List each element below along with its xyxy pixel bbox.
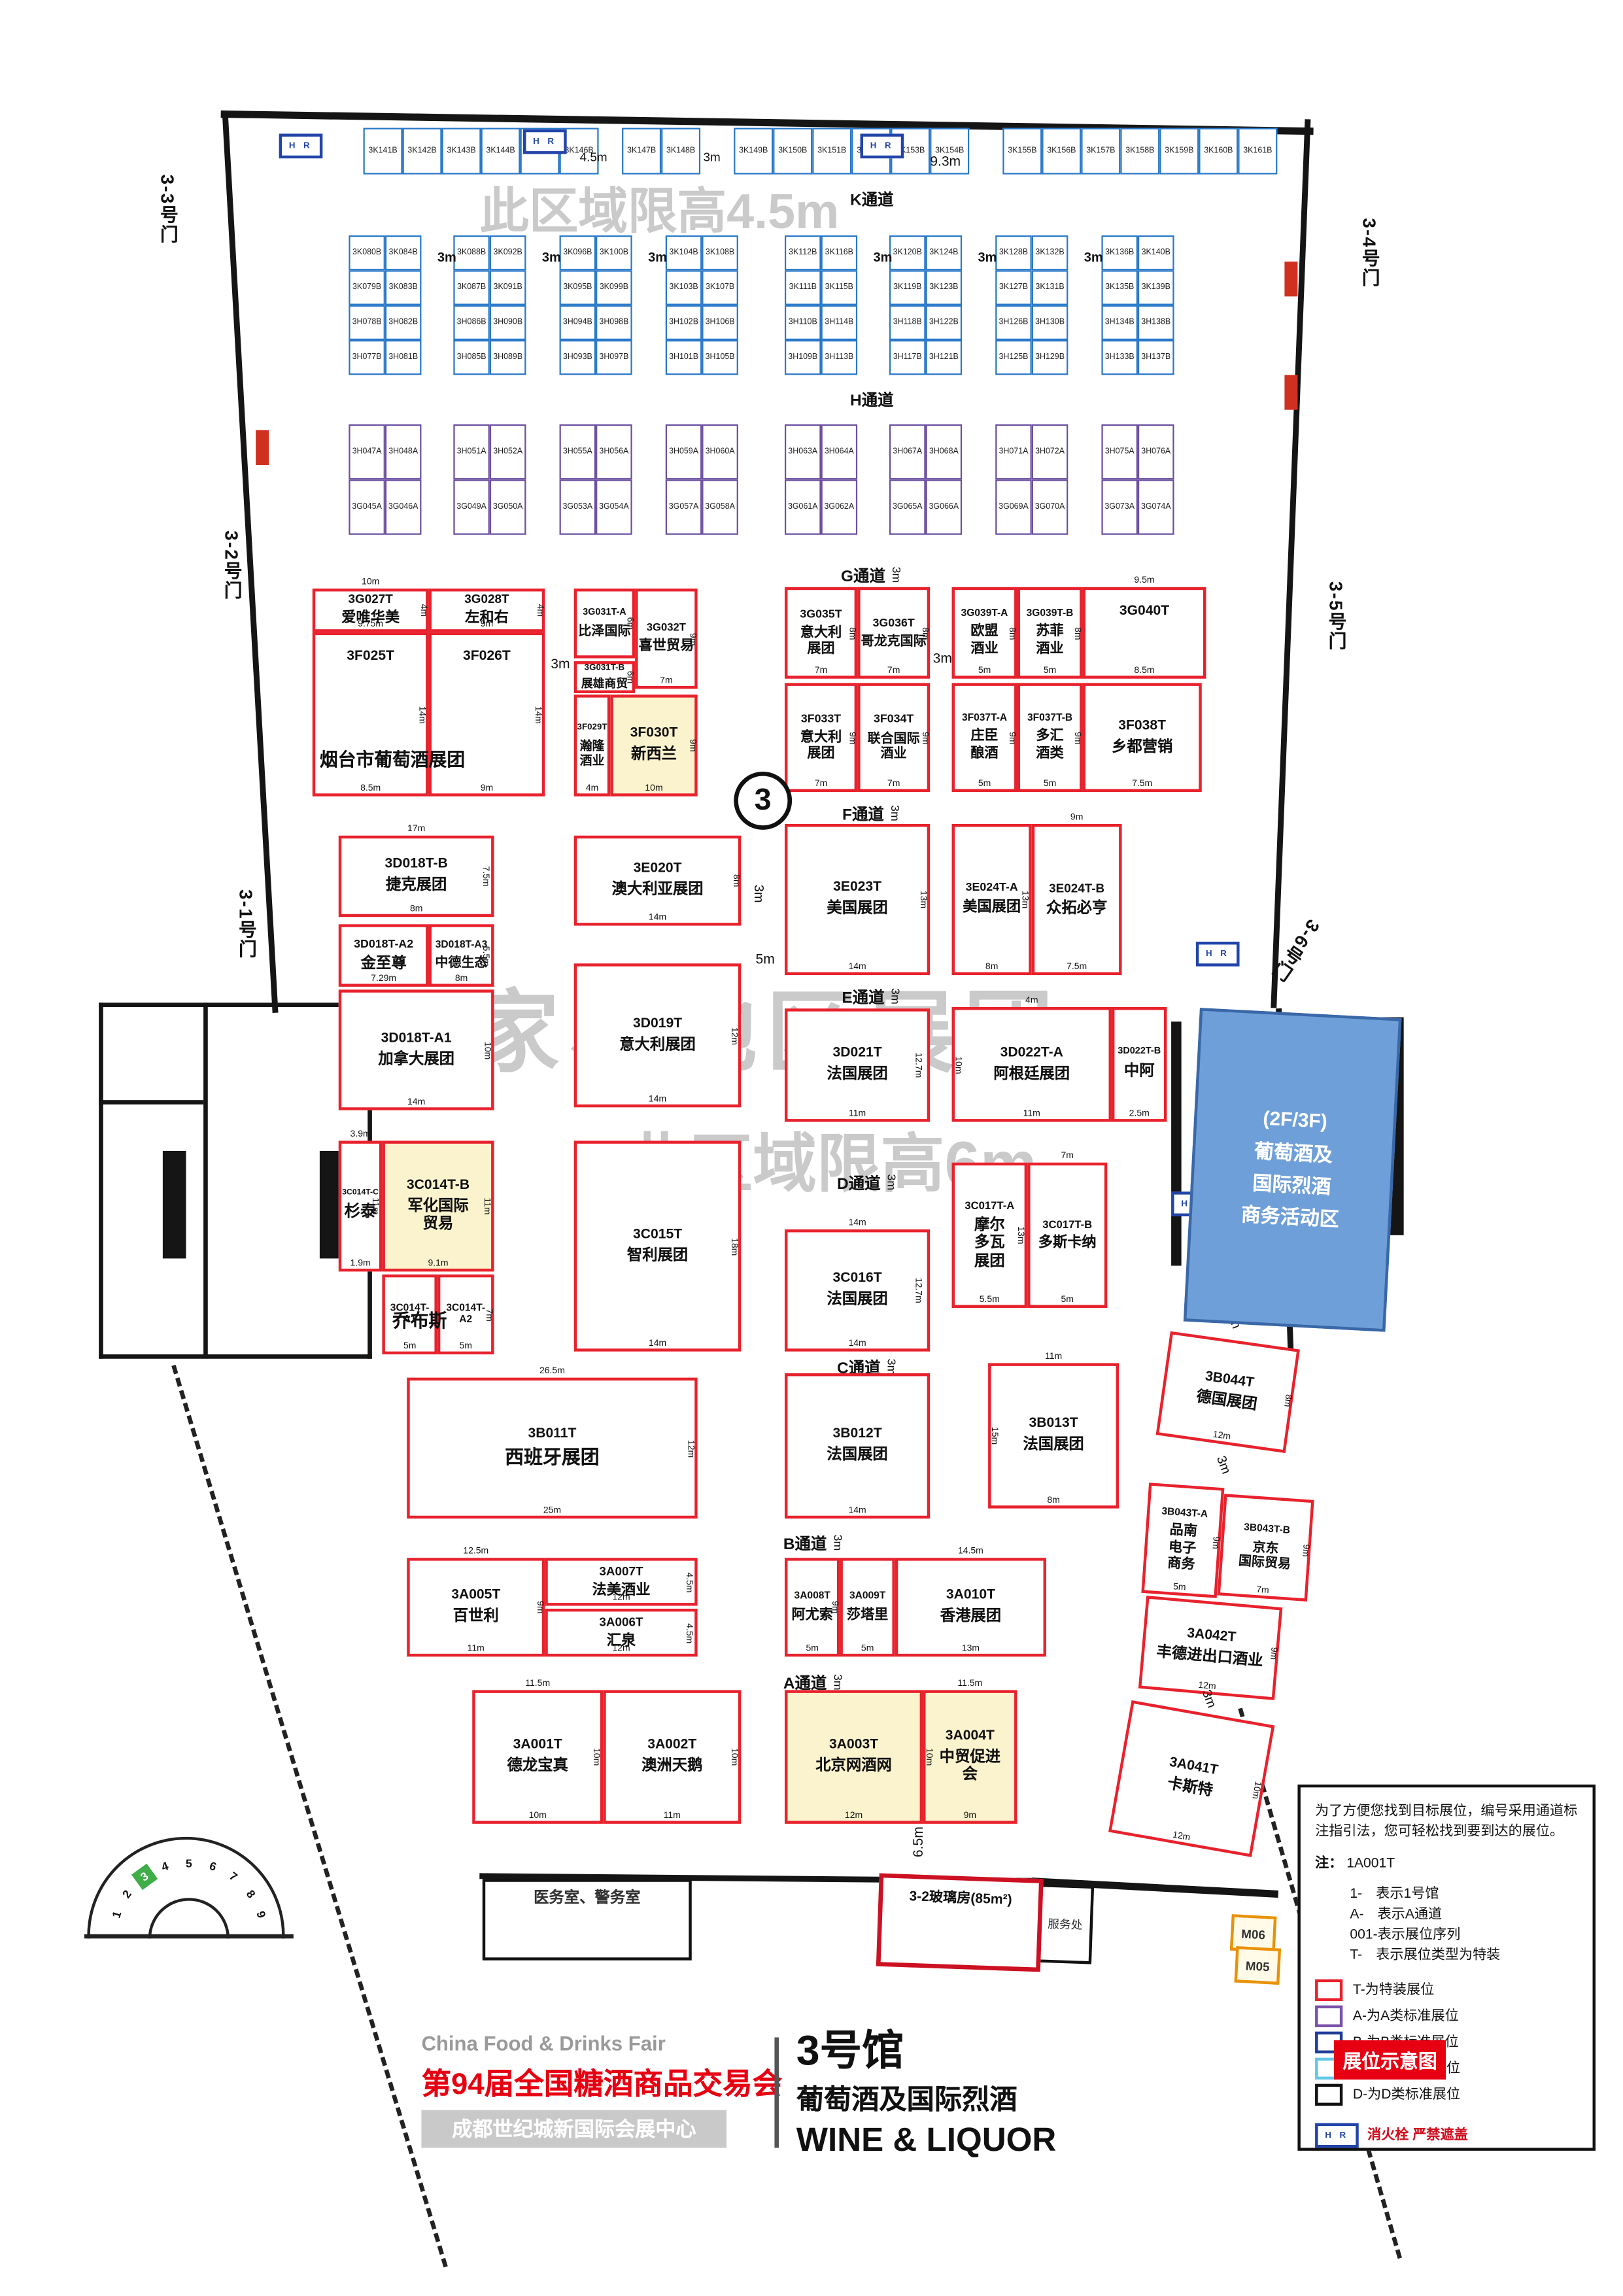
cell-3H077B[interactable]: 3H077B — [349, 340, 385, 375]
cell-3H110B[interactable]: 3H110B — [785, 305, 821, 340]
booth-3A007T[interactable]: 3A007T法美酒业12m4.5m — [545, 1558, 697, 1605]
cell-3H060A[interactable]: 3H060A — [702, 424, 738, 479]
booth-id: 3A002T — [647, 1738, 696, 1753]
booth-name: 阿根廷展团 — [993, 1065, 1070, 1082]
legend-note-line: 001-表示展位序列 — [1350, 1925, 1578, 1945]
dim-right: 11m — [370, 1197, 381, 1214]
legend-type-swatch — [1315, 2006, 1342, 2027]
cell-3K148B[interactable]: 3K148B — [661, 128, 700, 175]
cell-3K157B[interactable]: 3K157B — [1081, 128, 1120, 175]
booth-id: 3G035T — [800, 608, 842, 621]
booth-id: 3A008T — [794, 1592, 830, 1602]
booth-3D018T-A1[interactable]: 3D018T-A1加拿大展团14m10m — [339, 989, 494, 1110]
aisle-label-B通道: B通道3m — [783, 1532, 844, 1555]
booth-id: 3B012T — [833, 1428, 882, 1442]
cell-3K083B[interactable]: 3K083B — [385, 270, 422, 305]
door-label-3-1号门[interactable]: 3-1号门 — [233, 889, 260, 959]
dim-bottom: 5m — [440, 1341, 491, 1352]
booth-id: 3A009T — [849, 1592, 885, 1602]
cell-3K084B[interactable]: 3K084B — [385, 235, 422, 270]
booth-3D021T[interactable]: 3D021T法国展团11m12.7m — [785, 1008, 930, 1122]
dim-right: 12m — [728, 1027, 739, 1044]
aisle-label-G通道: G通道3m — [841, 564, 903, 587]
booth-3A042T[interactable]: 3A042T丰德进出口酒业12m9m — [1138, 1596, 1282, 1700]
cell-3H063A[interactable]: 3H063A — [785, 424, 821, 479]
grid-gap-width: 3m — [542, 250, 561, 264]
cell-3K135B[interactable]: 3K135B — [1101, 270, 1138, 305]
booth-name: 美国展团 — [827, 900, 887, 917]
booth-3C014T-B[interactable]: 3C014T-B军化国际 贸易9.1m11m — [382, 1140, 494, 1271]
cell-3K155B[interactable]: 3K155B — [1002, 128, 1042, 175]
dim-right: 8m — [1282, 1394, 1293, 1407]
cell-3H105B[interactable]: 3H105B — [702, 340, 738, 375]
cell-3G046A[interactable]: 3G046A — [385, 479, 422, 534]
cell-3H067A[interactable]: 3H067A — [889, 424, 926, 479]
cell-3K099B[interactable]: 3K099B — [596, 270, 632, 305]
booth-name: 法国展团 — [1023, 1436, 1084, 1454]
cell-3H118B[interactable]: 3H118B — [889, 305, 926, 340]
cell-3H113B[interactable]: 3H113B — [821, 340, 858, 375]
booth-3F026T[interactable]: 3F026T9m14m — [429, 632, 545, 797]
dim-bottom: 7m — [787, 666, 854, 676]
cell-3H059A[interactable]: 3H059A — [666, 424, 702, 479]
cell-3H126B[interactable]: 3H126B — [995, 305, 1032, 340]
hydrant-icon: H R — [861, 133, 904, 158]
cell-3H093B[interactable]: 3H093B — [560, 340, 596, 375]
booth-3F029T[interactable]: 3F029T瀚隆 酒业4m — [574, 694, 611, 797]
booth-3A004T[interactable]: 3A004T中贸促进 会11.5m9m10m — [923, 1690, 1017, 1823]
booth-name: 意大利 展团 — [800, 625, 842, 658]
booth-3B043T-A[interactable]: 3B043T-A品南 电子 商务5m9m — [1141, 1482, 1224, 1598]
cell-3K080B[interactable]: 3K080B — [349, 235, 385, 270]
map-label: 5m — [756, 952, 775, 968]
booth-3G031T-A[interactable]: 3G031T-A比泽国际6m — [574, 589, 635, 659]
booth-name: 西班牙展团 — [505, 1447, 599, 1469]
booth-id: 3G036T — [873, 617, 915, 629]
cell-3G069A[interactable]: 3G069A — [995, 479, 1032, 534]
booth-3B011T[interactable]: 3B011T西班牙展团26.5m25m12m — [407, 1378, 697, 1519]
booth-3C015T[interactable]: 3C015T智利展团14m18m — [574, 1140, 742, 1351]
cell-3K127B[interactable]: 3K127B — [995, 270, 1032, 305]
cell-3K095B[interactable]: 3K095B — [560, 270, 596, 305]
dim-bottom: 11m — [787, 1109, 927, 1120]
dim-bottom: 7m — [638, 676, 695, 686]
cell-3K107B[interactable]: 3K107B — [702, 270, 738, 305]
map-label: 3m — [751, 885, 766, 903]
cell-3K123B[interactable]: 3K123B — [926, 270, 963, 305]
booth-3F037T-B[interactable]: 3F037T-B多汇 酒类5m9m — [1017, 683, 1083, 792]
cell-3K131B[interactable]: 3K131B — [1032, 270, 1068, 305]
booth-3F030T[interactable]: 3F030T新西兰10m9m — [610, 694, 697, 797]
dim-bottom: 5m — [385, 1341, 435, 1352]
booth-name: 金至尊 — [361, 955, 407, 972]
booth-M05[interactable]: M05 — [1234, 1946, 1281, 1985]
cell-3H114B[interactable]: 3H114B — [821, 305, 858, 340]
dim-bottom: 5m — [1020, 779, 1080, 789]
booth-id: 3A006T — [599, 1615, 643, 1628]
cell-3H137B[interactable]: 3H137B — [1138, 340, 1174, 375]
booth-3D018T-B[interactable]: 3D018T-B捷克展团17m8m7.5m — [339, 836, 494, 917]
dim-right: 8m — [920, 626, 931, 639]
cell-3G053A[interactable]: 3G053A — [560, 479, 596, 534]
booth-id: 3D018T-A1 — [381, 1031, 452, 1046]
cell-3K096B[interactable]: 3K096B — [560, 235, 596, 270]
booth-id: 3F029T — [577, 724, 607, 733]
booth-3G028T[interactable]: 3G028T左和右9m4m — [429, 589, 545, 632]
cell-3K140B[interactable]: 3K140B — [1138, 235, 1174, 270]
cell-3H072A[interactable]: 3H072A — [1032, 424, 1068, 479]
cell-3H109B[interactable]: 3H109B — [785, 340, 821, 375]
hydrant-icon: H R — [523, 129, 567, 154]
cell-3H051A[interactable]: 3H051A — [453, 424, 490, 479]
cell-3K151B[interactable]: 3K151B — [812, 128, 851, 175]
cell-3K100B[interactable]: 3K100B — [596, 235, 632, 270]
booth-name: 北京网酒网 — [815, 1757, 892, 1775]
cell-3K132B[interactable]: 3K132B — [1032, 235, 1068, 270]
wall-segment — [99, 1354, 372, 1359]
dim-bottom: 8m — [432, 974, 491, 984]
dim-right: 9m — [1210, 1536, 1222, 1549]
booth-3G031T-B[interactable]: 3G031T-B展雄商贸6m — [574, 661, 635, 693]
cell-3K119B[interactable]: 3K119B — [889, 270, 926, 305]
legend-note-line: T- 表示展位类型为特装 — [1350, 1945, 1578, 1966]
cell-3G045A[interactable]: 3G045A — [349, 479, 385, 534]
cell-3K087B[interactable]: 3K087B — [453, 270, 490, 305]
cell-3H117B[interactable]: 3H117B — [889, 340, 926, 375]
dim-right: 9m — [687, 739, 698, 751]
booth-3C014T-C[interactable]: 3C014T-C杉泰3.9m1.9m11m — [339, 1140, 383, 1271]
cell-3H097B[interactable]: 3H097B — [596, 340, 632, 375]
wall-segment — [1271, 119, 1310, 1008]
cell-3G061A[interactable]: 3G061A — [785, 479, 821, 534]
booth-3A009T[interactable]: 3A009T莎塔里5m — [840, 1558, 895, 1656]
door-label-3-5号门[interactable]: 3-5号门 — [1322, 581, 1350, 651]
dim-top: 17m — [341, 824, 491, 834]
booth-3A001T[interactable]: 3A001T德龙宝真11.5m10m10m — [472, 1690, 603, 1823]
booth-3B043T-B[interactable]: 3B043T-B京东 国际贸易7m9m — [1217, 1494, 1314, 1602]
booth-3F037T-A[interactable]: 3F037T-A庄臣 酿酒5m9m — [952, 683, 1017, 792]
door-label-3-2号门[interactable]: 3-2号门 — [218, 530, 245, 600]
cell-3K112B[interactable]: 3K112B — [785, 235, 821, 270]
dim-top: 26.5m — [410, 1366, 695, 1377]
booth-3E024T-B[interactable]: 3E024T-B众拓必亨9m7.5m — [1032, 824, 1122, 975]
dim-right: 4m — [535, 604, 545, 617]
cell-3G073A[interactable]: 3G073A — [1101, 479, 1138, 534]
dim-right: 9m — [687, 632, 698, 645]
cell-3K111B[interactable]: 3K111B — [785, 270, 821, 305]
dim-bottom: 12m — [1112, 1819, 1251, 1853]
booth-3D018T-A2[interactable]: 3D018T-A2金至尊7.29m — [339, 924, 429, 987]
cell-3G054A[interactable]: 3G054A — [596, 479, 632, 534]
cell-3K144B[interactable]: 3K144B — [481, 128, 521, 175]
aisle-width: 3m — [831, 1535, 844, 1552]
dim-left: 15m — [989, 1427, 999, 1445]
dim-right: 12.7m — [914, 1052, 924, 1078]
cell-3H055A[interactable]: 3H055A — [560, 424, 596, 479]
cell-3K159B[interactable]: 3K159B — [1159, 128, 1199, 175]
booth-3G035T[interactable]: 3G035T意大利 展团7m8m — [785, 587, 857, 679]
cell-3H125B[interactable]: 3H125B — [995, 340, 1032, 375]
cell-3H052A[interactable]: 3H052A — [490, 424, 526, 479]
cell-3K104B[interactable]: 3K104B — [666, 235, 702, 270]
booth-id: 3F033T — [801, 713, 841, 725]
booth-3D022T-B[interactable]: 3D022T-B中阿2.5m — [1112, 1007, 1167, 1122]
aisle-name: K通道 — [850, 188, 894, 211]
aisle-name: D通道 — [837, 1171, 881, 1195]
booth-3F034T[interactable]: 3F034T联合国际 酒业7m9m — [857, 683, 930, 792]
cell-3H068A[interactable]: 3H068A — [926, 424, 963, 479]
cell-3K088B[interactable]: 3K088B — [453, 235, 490, 270]
cell-3G066A[interactable]: 3G066A — [926, 479, 963, 534]
booth-3C016T[interactable]: 3C016T法国展团14m14m12.7m — [785, 1229, 930, 1352]
dim-bottom: 1.9m — [341, 1258, 379, 1269]
booth-3G032T[interactable]: 3G032T喜世贸易7m9m — [635, 589, 698, 689]
dim-bottom: 8m — [955, 962, 1029, 972]
booth-3G027T[interactable]: 3G027T爱唯华美10m9.75m4m — [313, 589, 429, 632]
booth-3D022T-A[interactable]: 3D022T-A阿根廷展团4m11m10m — [952, 1007, 1112, 1122]
booth-3A008T[interactable]: 3A008T阿尤索5m9m — [785, 1558, 840, 1656]
booth-id: 3A042T — [1186, 1628, 1237, 1647]
booth-3F025T[interactable]: 3F025T8.5m14m — [313, 632, 429, 797]
booth-3A005T[interactable]: 3A005T百世利12.5m11m9m — [407, 1558, 545, 1656]
booth-name: 多汇 酒类 — [1036, 728, 1063, 761]
hall-title-en: WINE & LIQUOR — [796, 2120, 1057, 2159]
cell-3G074A[interactable]: 3G074A — [1138, 479, 1174, 534]
cell-3K156B[interactable]: 3K156B — [1042, 128, 1081, 175]
booth-name: 德国展团 — [1195, 1388, 1258, 1414]
cell-3H090B[interactable]: 3H090B — [490, 305, 526, 340]
legend-hydrant-text: 消火栓 严禁遮盖 — [1367, 2126, 1468, 2146]
plan-badge: 展位示意图 — [1334, 2040, 1446, 2080]
cell-3K103B[interactable]: 3K103B — [666, 270, 702, 305]
cell-3H075A[interactable]: 3H075A — [1101, 424, 1138, 479]
legend-panel: 为了方便您找到目标展位，编号采用通道标注指引法，您可轻松找到要到达的展位。 注：… — [1297, 1785, 1596, 2151]
booth-3C017T-A[interactable]: 3C017T-A摩尔 多瓦 展团5.5m13m — [952, 1163, 1028, 1308]
booth-3E024T-A[interactable]: 3E024T-A美国展团8m13m — [952, 824, 1032, 975]
booth-name: 众拓必亨 — [1046, 899, 1107, 917]
dim-right: 13m — [1019, 891, 1030, 908]
booth-3E023T[interactable]: 3E023T美国展团14m13m — [785, 824, 930, 975]
cell-3H071A[interactable]: 3H071A — [995, 424, 1032, 479]
cell-3H122B[interactable]: 3H122B — [926, 305, 963, 340]
grid-gap-width: 3m — [437, 250, 456, 264]
cell-3H102B[interactable]: 3H102B — [666, 305, 702, 340]
booth-name: 中阿 — [1124, 1063, 1155, 1080]
dim-top: 10m — [315, 577, 426, 587]
dim-bottom: 7.5m — [1085, 779, 1199, 789]
booth-3G036T[interactable]: 3G036T哥龙克国际7m8m — [857, 587, 930, 679]
cell-3G057A[interactable]: 3G057A — [666, 479, 702, 534]
dim-right: 9m — [1007, 731, 1017, 744]
cell-3H048A[interactable]: 3H048A — [385, 424, 422, 479]
aisle-label-E通道: E通道3m — [842, 985, 902, 1009]
booth-3A010T[interactable]: 3A010T香港展团14.5m13m — [895, 1558, 1046, 1656]
dim-bottom: 9.75m — [315, 619, 426, 630]
dim-bottom: 12m — [1159, 1422, 1284, 1450]
booth-name: 阿尤索 — [792, 1607, 833, 1623]
map-label: 烟台市葡萄酒展团 — [320, 744, 465, 772]
dim-bottom: 9m — [432, 619, 542, 630]
booth-id: 3E020T — [634, 862, 682, 876]
cell-3K128B[interactable]: 3K128B — [995, 235, 1032, 270]
booth-3C017T-B[interactable]: 3C017T-B多斯卡纳7m5m — [1027, 1163, 1107, 1308]
cell-3H085B[interactable]: 3H085B — [453, 340, 490, 375]
booth-3A041T[interactable]: 3A041T卡斯特12m10m — [1108, 1700, 1274, 1857]
cell-3K115B[interactable]: 3K115B — [821, 270, 858, 305]
booth-3G040T[interactable]: 3G040T9.5m8.5m — [1083, 587, 1206, 679]
booth-3G039T-A[interactable]: 3G039T-A欧盟 酒业5m8m — [952, 587, 1017, 679]
booth-id: 3C016T — [833, 1272, 882, 1286]
booth-id: 3B011T — [528, 1428, 576, 1442]
legend-type-swatch — [1315, 1979, 1342, 2001]
booth-id: 3C014T-B — [407, 1179, 470, 1193]
cell-3H086B[interactable]: 3H086B — [453, 305, 490, 340]
cell-3G070A[interactable]: 3G070A — [1032, 479, 1068, 534]
booth-id: 3G040T — [1119, 604, 1169, 619]
service-room: 服务处 — [1036, 1884, 1095, 1964]
cell-3H130B[interactable]: 3H130B — [1032, 305, 1068, 340]
dim-bottom: 14m — [787, 1505, 927, 1516]
cell-3K116B[interactable]: 3K116B — [821, 235, 858, 270]
door-label-3-4号门[interactable]: 3-4号门 — [1356, 218, 1383, 288]
cell-3K161B[interactable]: 3K161B — [1238, 128, 1277, 175]
booth-3D019T[interactable]: 3D019T意大利展团14m12m — [574, 963, 742, 1107]
wine-business-zone[interactable]: (2F/3F)葡萄酒及国际烈酒商务活动区 — [1184, 1008, 1402, 1332]
dim-right: 8m — [731, 874, 742, 887]
booth-3A002T[interactable]: 3A002T澳洲天鹅11m10m — [603, 1690, 741, 1823]
dim-bottom: 14m — [341, 1097, 491, 1108]
map-label: 3m — [933, 651, 952, 667]
dim-right: 9m — [1300, 1544, 1311, 1557]
cell-3K092B[interactable]: 3K092B — [490, 235, 526, 270]
legend-type-label: D-为D类标准展位 — [1353, 2085, 1460, 2106]
glass-house: 3-2玻璃房(85m²) — [876, 1874, 1044, 1972]
booth-name: 丰德进出口酒业 — [1155, 1644, 1263, 1671]
cell-3K150B[interactable]: 3K150B — [773, 128, 812, 175]
cell-3H098B[interactable]: 3H098B — [596, 305, 632, 340]
cell-3H081B[interactable]: 3H081B — [385, 340, 422, 375]
wall-segment — [1171, 1021, 1182, 1265]
booth-3D018T-A3[interactable]: 3D018T-A3中德生态8m5.5m — [429, 924, 494, 987]
dim-bottom: 12m — [787, 1811, 919, 1821]
booth-3A006T[interactable]: 3A006T汇泉12m4.5m — [545, 1609, 697, 1656]
cell-3H089B[interactable]: 3H089B — [490, 340, 526, 375]
compass-sector-5[interactable]: 5 — [179, 1853, 198, 1872]
booth-name: 法国展团 — [827, 1066, 887, 1084]
dim-bottom: 14m — [787, 962, 927, 972]
cell-3K147B[interactable]: 3K147B — [622, 128, 661, 175]
booth-3A003T[interactable]: 3A003T北京网酒网12m — [785, 1690, 923, 1823]
cell-3H129B[interactable]: 3H129B — [1032, 340, 1068, 375]
cell-3K091B[interactable]: 3K091B — [490, 270, 526, 305]
cell-3H134B[interactable]: 3H134B — [1101, 305, 1138, 340]
dim-bottom: 7m — [861, 779, 927, 789]
fire-hydrant-icon — [1284, 262, 1297, 296]
cell-3H101B[interactable]: 3H101B — [666, 340, 702, 375]
cell-3H076A[interactable]: 3H076A — [1138, 424, 1174, 479]
cell-3G065A[interactable]: 3G065A — [889, 479, 926, 534]
booth-name: 喜世贸易 — [639, 638, 694, 655]
dim-right: 7.5m — [480, 866, 490, 886]
dim-right: 10m — [590, 1748, 601, 1766]
dim-right: 8m — [847, 626, 858, 639]
booth-3B044T[interactable]: 3B044T德国展团12m8m — [1156, 1331, 1300, 1453]
booth-name: 美国展团 — [963, 899, 1021, 916]
aisle-width: 3m — [890, 568, 903, 584]
cell-3H078B[interactable]: 3H078B — [349, 305, 385, 340]
cell-3K142B[interactable]: 3K142B — [403, 128, 442, 175]
aisle-width: 3m — [831, 1675, 844, 1691]
door-label-3-3号门[interactable]: 3-3号门 — [154, 175, 182, 245]
dim-right: 9m — [535, 1601, 545, 1613]
dim-bottom: 7.5m — [1034, 962, 1119, 972]
cell-3K136B[interactable]: 3K136B — [1101, 235, 1138, 270]
cell-3G049A[interactable]: 3G049A — [453, 479, 490, 534]
cell-3K149B[interactable]: 3K149B — [734, 128, 773, 175]
cell-3K141B[interactable]: 3K141B — [364, 128, 403, 175]
dim-bottom: 8m — [991, 1496, 1116, 1506]
booth-name: 意大利 展团 — [800, 730, 842, 762]
booth-name: 哥龙克国际 — [861, 634, 927, 649]
compass-baseline — [84, 1934, 294, 1939]
cell-3H094B[interactable]: 3H094B — [560, 305, 596, 340]
cell-3K079B[interactable]: 3K079B — [349, 270, 385, 305]
dim-top: 11.5m — [475, 1679, 600, 1689]
cell-3H121B[interactable]: 3H121B — [926, 340, 963, 375]
cell-3G062A[interactable]: 3G062A — [821, 479, 858, 534]
booth-3E020T[interactable]: 3E020T澳大利亚展团14m8m — [574, 836, 742, 926]
cell-3K143B[interactable]: 3K143B — [442, 128, 481, 175]
cell-3H106B[interactable]: 3H106B — [702, 305, 738, 340]
cell-3K120B[interactable]: 3K120B — [889, 235, 926, 270]
dim-bottom: 9m — [926, 1811, 1015, 1821]
cell-3K158B[interactable]: 3K158B — [1120, 128, 1159, 175]
booth-3F038T[interactable]: 3F038T乡都营销7.5m — [1083, 683, 1202, 792]
wall-segment — [203, 1002, 208, 1357]
booth-name: 香港展团 — [940, 1607, 1001, 1625]
booth-name: 苏菲 酒业 — [1036, 624, 1063, 657]
cell-3G050A[interactable]: 3G050A — [490, 479, 526, 534]
cell-3K139B[interactable]: 3K139B — [1138, 270, 1174, 305]
booth-id: 3A005T — [451, 1589, 500, 1603]
booth-3F033T[interactable]: 3F033T意大利 展团7m9m — [785, 683, 857, 792]
aisle-label-H通道: H通道 — [850, 388, 894, 411]
cell-3G058A[interactable]: 3G058A — [702, 479, 738, 534]
dim-top: 12.5m — [410, 1546, 542, 1556]
map-label: 9.3m — [930, 154, 961, 170]
booth-id: 3A010T — [946, 1589, 995, 1603]
dim-bottom: 9.1m — [385, 1258, 491, 1269]
booth-3B012T[interactable]: 3B012T法国展团14m — [785, 1373, 930, 1518]
booth-id: 3G039T-A — [961, 609, 1008, 619]
cell-3H047A[interactable]: 3H047A — [349, 424, 385, 479]
cell-3H138B[interactable]: 3H138B — [1138, 305, 1174, 340]
cell-3K108B[interactable]: 3K108B — [702, 235, 738, 270]
booth-3B013T[interactable]: 3B013T法国展团11m8m15m — [988, 1363, 1119, 1508]
booth-3G039T-B[interactable]: 3G039T-B苏菲 酒业5m8m — [1017, 587, 1083, 679]
cell-3H133B[interactable]: 3H133B — [1101, 340, 1138, 375]
cell-3H056A[interactable]: 3H056A — [596, 424, 632, 479]
grid-gap-width: 3m — [648, 250, 667, 264]
cell-3H064A[interactable]: 3H064A — [821, 424, 858, 479]
booth-id: 3A001T — [513, 1738, 562, 1753]
booth-id: 3F034T — [874, 714, 914, 727]
cell-3K160B[interactable]: 3K160B — [1199, 128, 1238, 175]
zone-text-line: 商务活动区 — [1240, 1199, 1340, 1237]
cell-3K124B[interactable]: 3K124B — [926, 235, 963, 270]
cell-3H082B[interactable]: 3H082B — [385, 305, 422, 340]
booth-id: 3G039T-B — [1027, 609, 1074, 619]
